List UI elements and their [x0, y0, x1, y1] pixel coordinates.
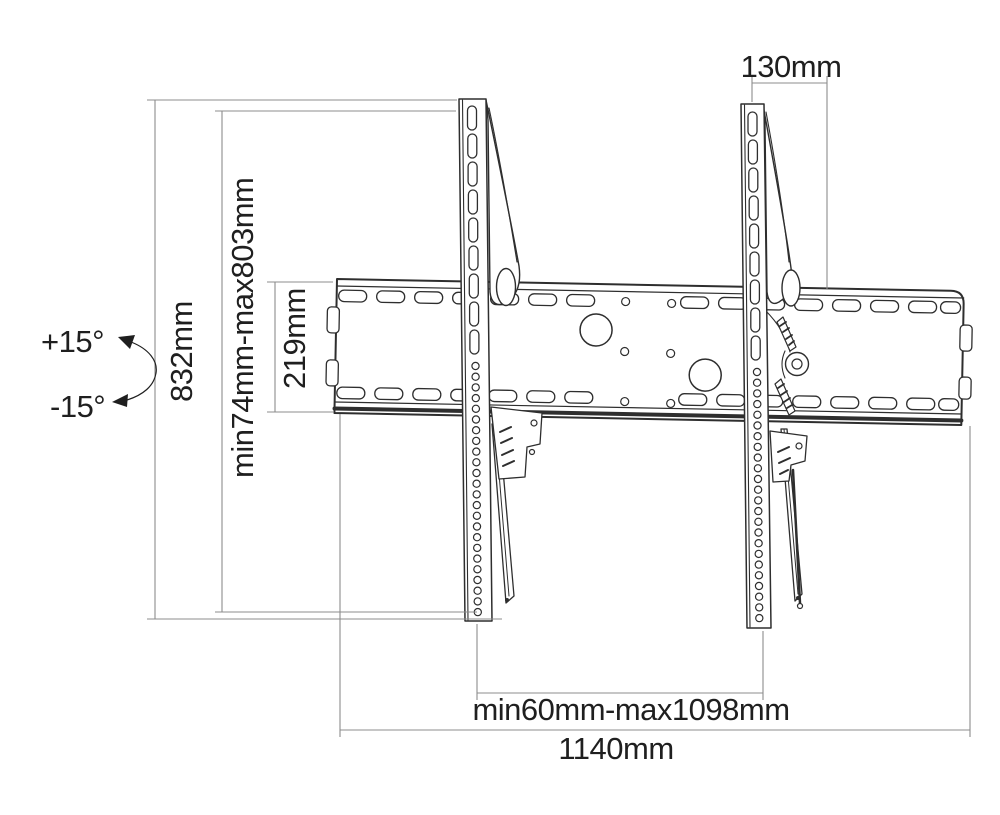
arrowhead-up [118, 335, 135, 349]
left-latch [491, 407, 542, 479]
left-arm-hook [497, 269, 516, 306]
diagram-canvas: 130mm 832mm min74mm-max803mm 219mm min60… [0, 0, 1000, 815]
right-latch [770, 431, 807, 482]
label-1140mm: 1140mm [558, 731, 673, 766]
tilt-arc [112, 335, 156, 407]
label-tilt-up: +15° [41, 324, 104, 359]
wall-plate [325, 279, 972, 425]
tilt-knob [786, 353, 809, 376]
label-219mm: 219mm [277, 288, 312, 389]
left-tab [327, 307, 339, 333]
label-min60-max1098: min60mm-max1098mm [472, 692, 789, 727]
label-tilt-down: -15° [50, 389, 105, 424]
arrowhead-down [112, 394, 128, 407]
dim-1140mm-lines [340, 414, 970, 737]
left-tab [326, 360, 338, 386]
right-tab [959, 377, 971, 399]
label-832mm: 832mm [164, 301, 199, 402]
left-strip [459, 99, 492, 621]
wall-mount-dimension-diagram: 130mm 832mm min74mm-max803mm 219mm min60… [0, 0, 1000, 815]
dim-min60-max1098-lines [477, 624, 763, 700]
label-130mm: 130mm [741, 49, 842, 84]
right-tab [960, 325, 972, 351]
label-min74-max803: min74mm-max803mm [225, 178, 260, 478]
right-arm-hook [782, 270, 800, 306]
mount-drawing [325, 99, 972, 628]
